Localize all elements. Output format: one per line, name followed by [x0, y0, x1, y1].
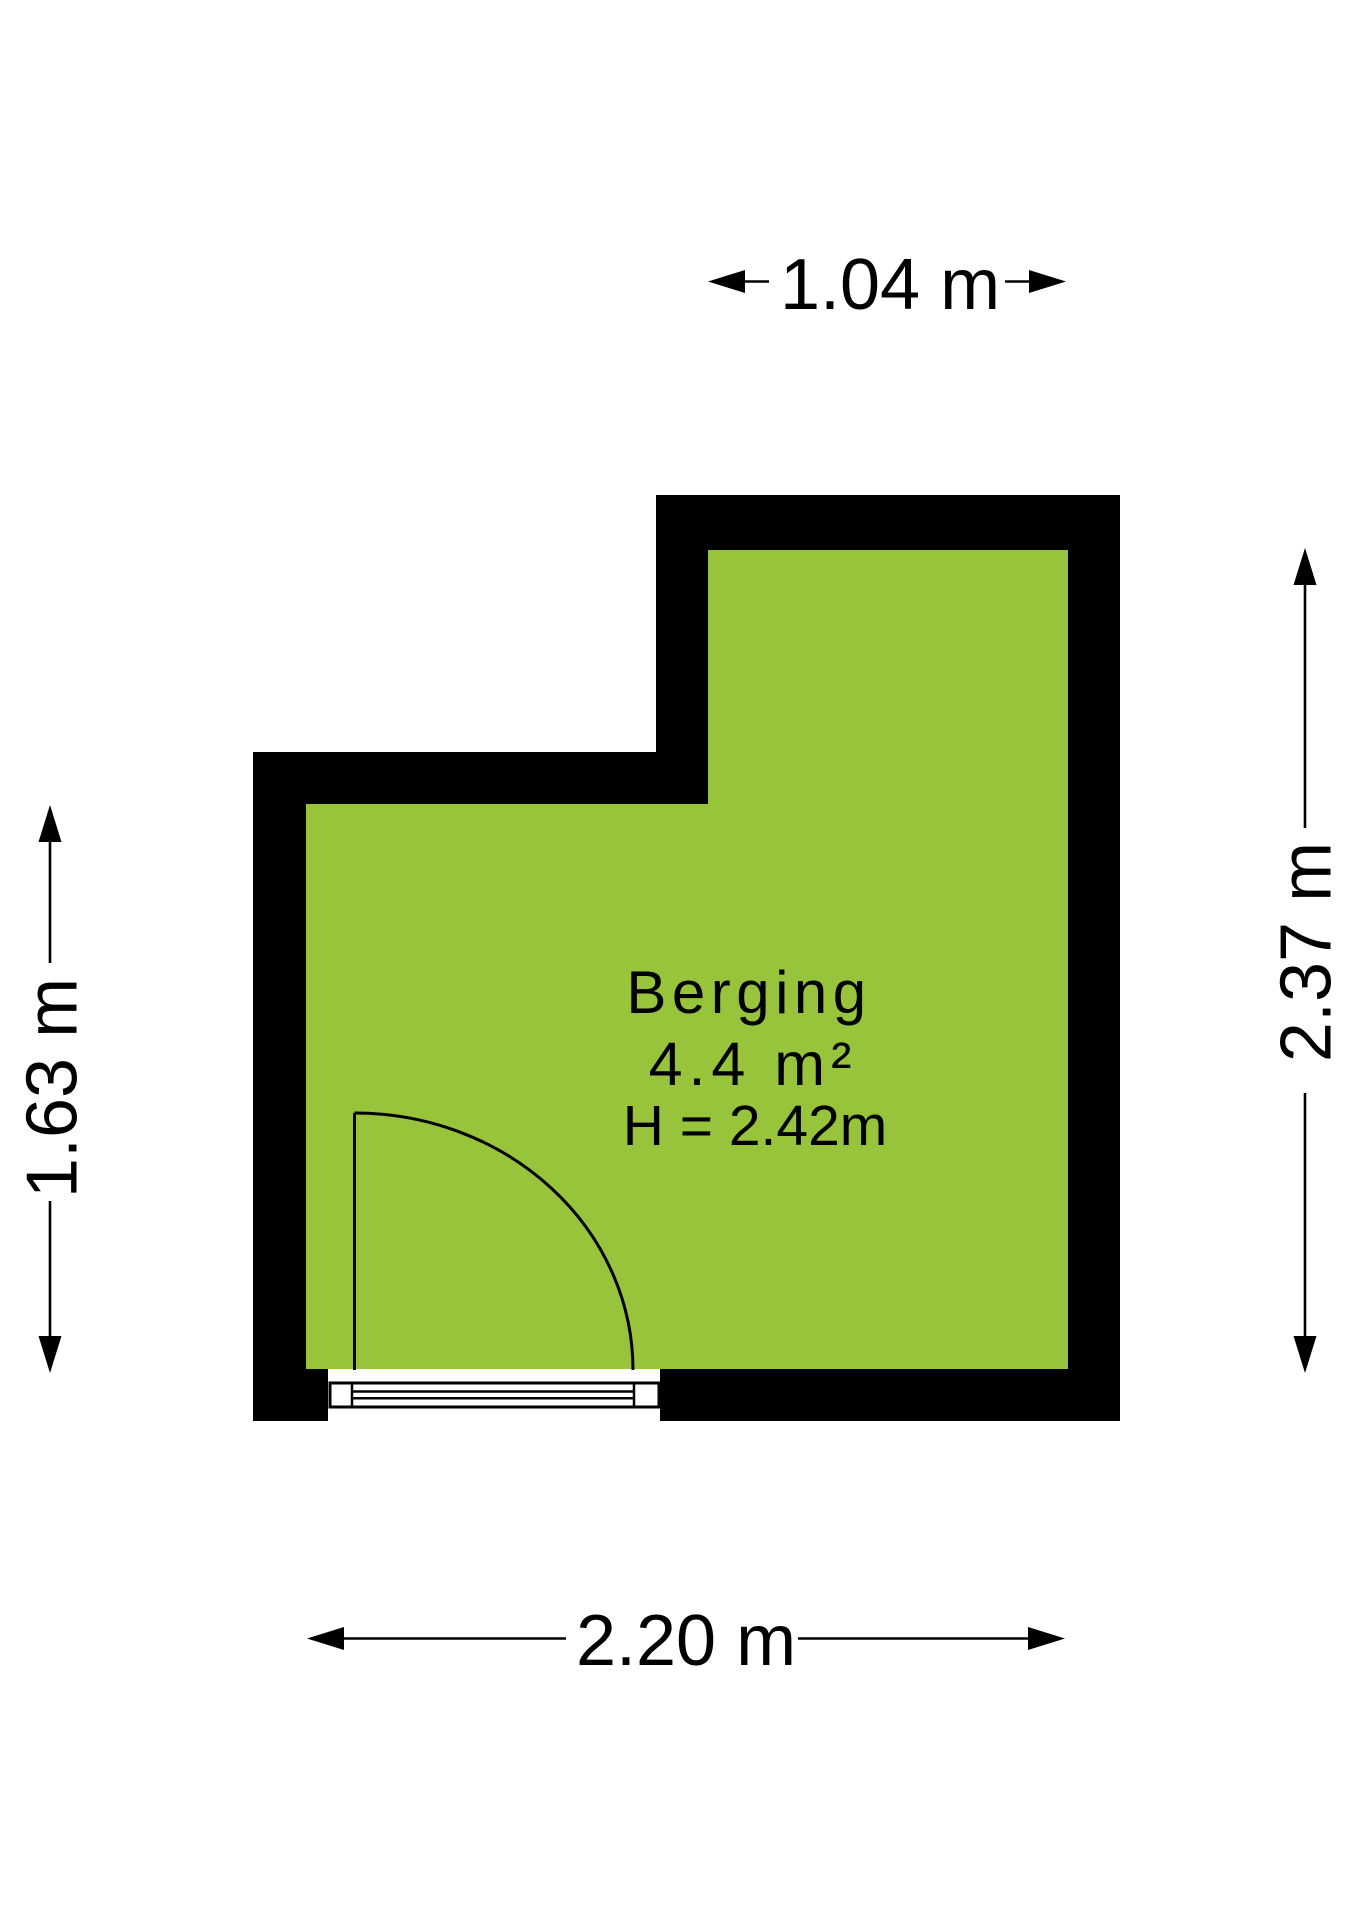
svg-text:2.20 m: 2.20 m — [576, 1601, 796, 1681]
svg-text:1.04 m: 1.04 m — [780, 245, 1000, 325]
svg-text:H = 2.42m: H = 2.42m — [623, 1094, 888, 1158]
svg-text:4.4 m²: 4.4 m² — [649, 1030, 858, 1098]
svg-text:1.63 m: 1.63 m — [13, 978, 93, 1198]
svg-text:Berging: Berging — [626, 959, 871, 1026]
svg-text:2.37 m: 2.37 m — [1267, 842, 1347, 1062]
